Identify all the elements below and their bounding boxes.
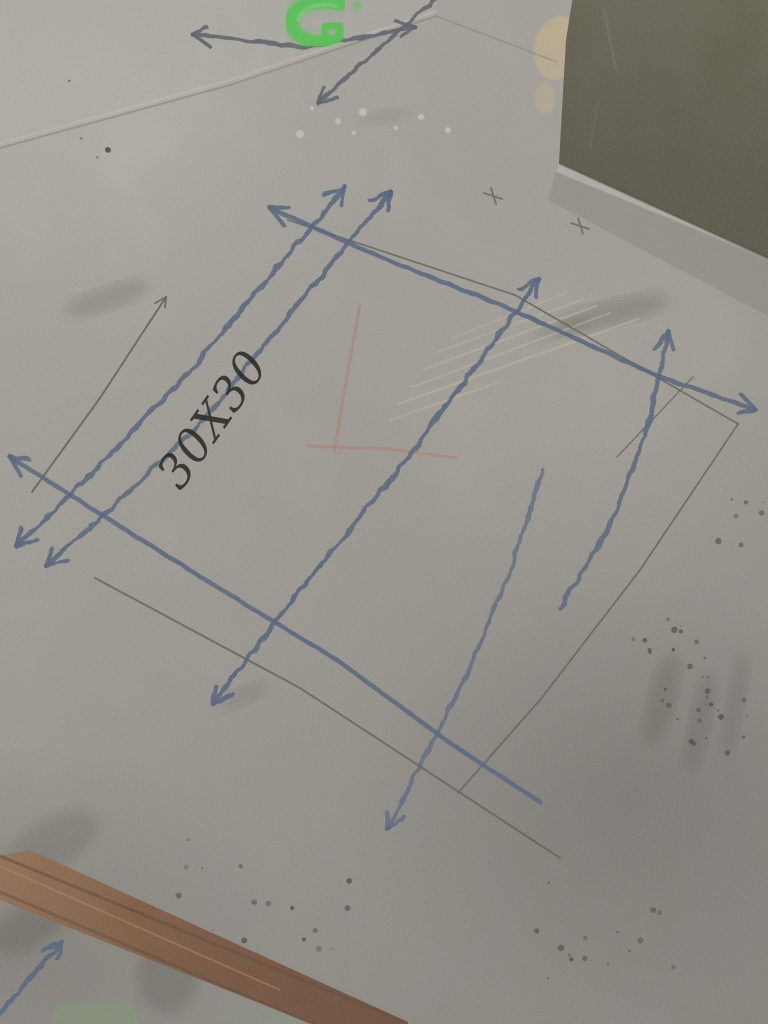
grain-light [0, 0, 768, 1024]
floor-markings-canvas [0, 0, 768, 1024]
construction-floor-photo: 30X30 [0, 0, 768, 1024]
